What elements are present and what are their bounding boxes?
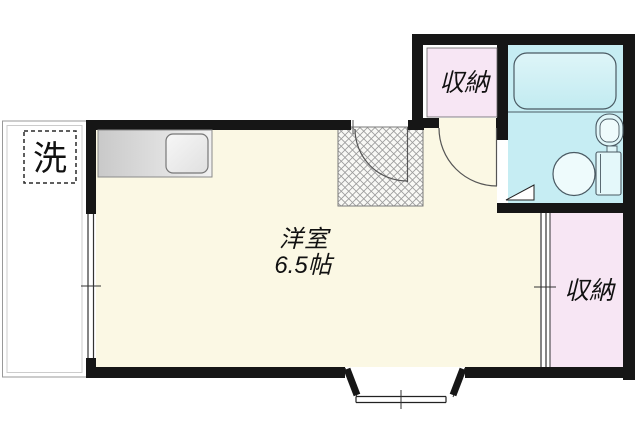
wall-closet-stub-left <box>412 118 439 128</box>
toilet-bowl <box>553 153 595 196</box>
kitchen-sink <box>166 134 208 173</box>
wall-bottom-right <box>465 367 635 378</box>
wall-left-upper <box>86 120 96 214</box>
floorplan-page: 洗 <box>0 0 640 422</box>
washing-machine-space: 洗 <box>24 131 76 183</box>
wall-bottom-left <box>86 367 345 378</box>
toilet-tank <box>596 152 621 195</box>
floorplan-drawing: 洗 <box>0 0 640 422</box>
wall-bathroom-bottom <box>497 203 635 213</box>
wash-basin-bowl <box>600 119 619 142</box>
wall-block-top <box>412 34 635 45</box>
wall-block-left <box>412 34 423 128</box>
main-room-name: 洋室 <box>279 226 331 253</box>
wall-top-main <box>86 120 351 130</box>
main-room-size: 6.5帖 <box>274 252 334 279</box>
bathroom-door-gap <box>497 140 508 203</box>
kitchen-counter <box>98 130 212 177</box>
bathtub <box>514 53 616 109</box>
closet-right-label: 収納 <box>564 277 616 305</box>
washer-label: 洗 <box>33 140 67 178</box>
basin-tap <box>607 146 617 152</box>
wall-bathroom-left <box>497 44 508 140</box>
closet-top-label: 収納 <box>439 69 491 97</box>
genkan-floor <box>338 127 423 206</box>
bay-window <box>345 367 465 409</box>
